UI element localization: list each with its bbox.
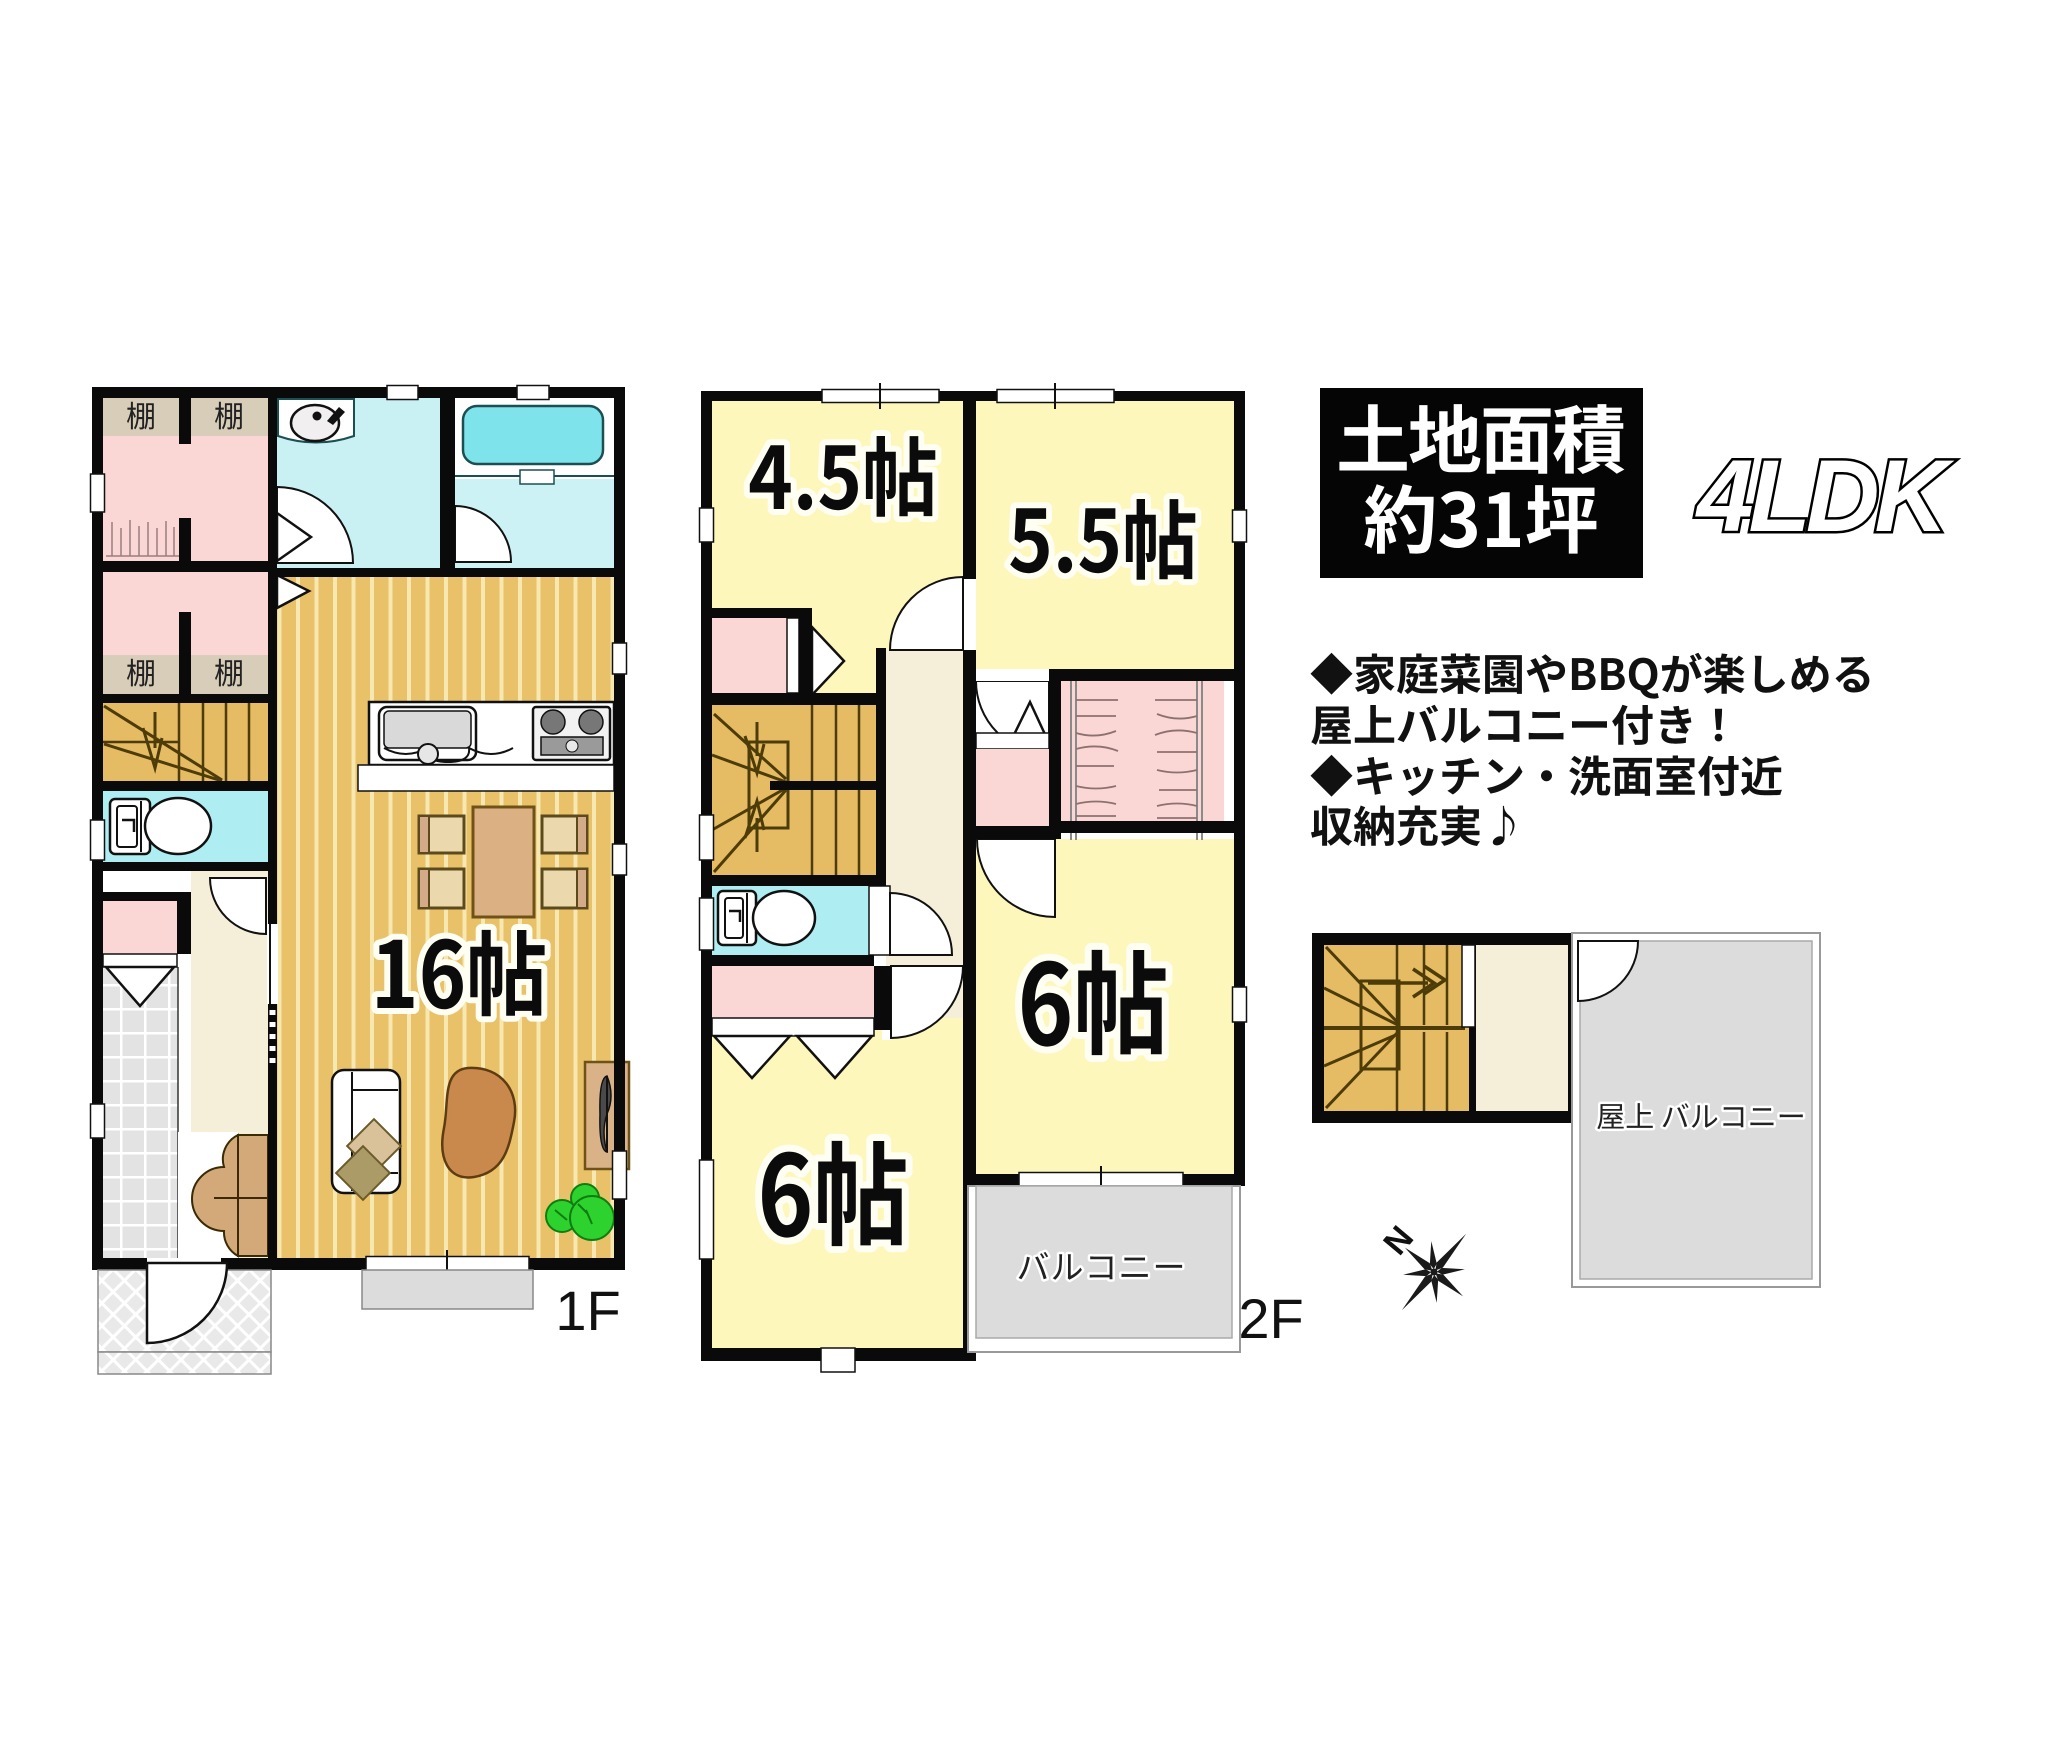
- svg-text:2F: 2F: [1238, 1287, 1303, 1350]
- svg-text:1F: 1F: [555, 1279, 620, 1342]
- svg-text:4LDK: 4LDK: [1695, 439, 1955, 553]
